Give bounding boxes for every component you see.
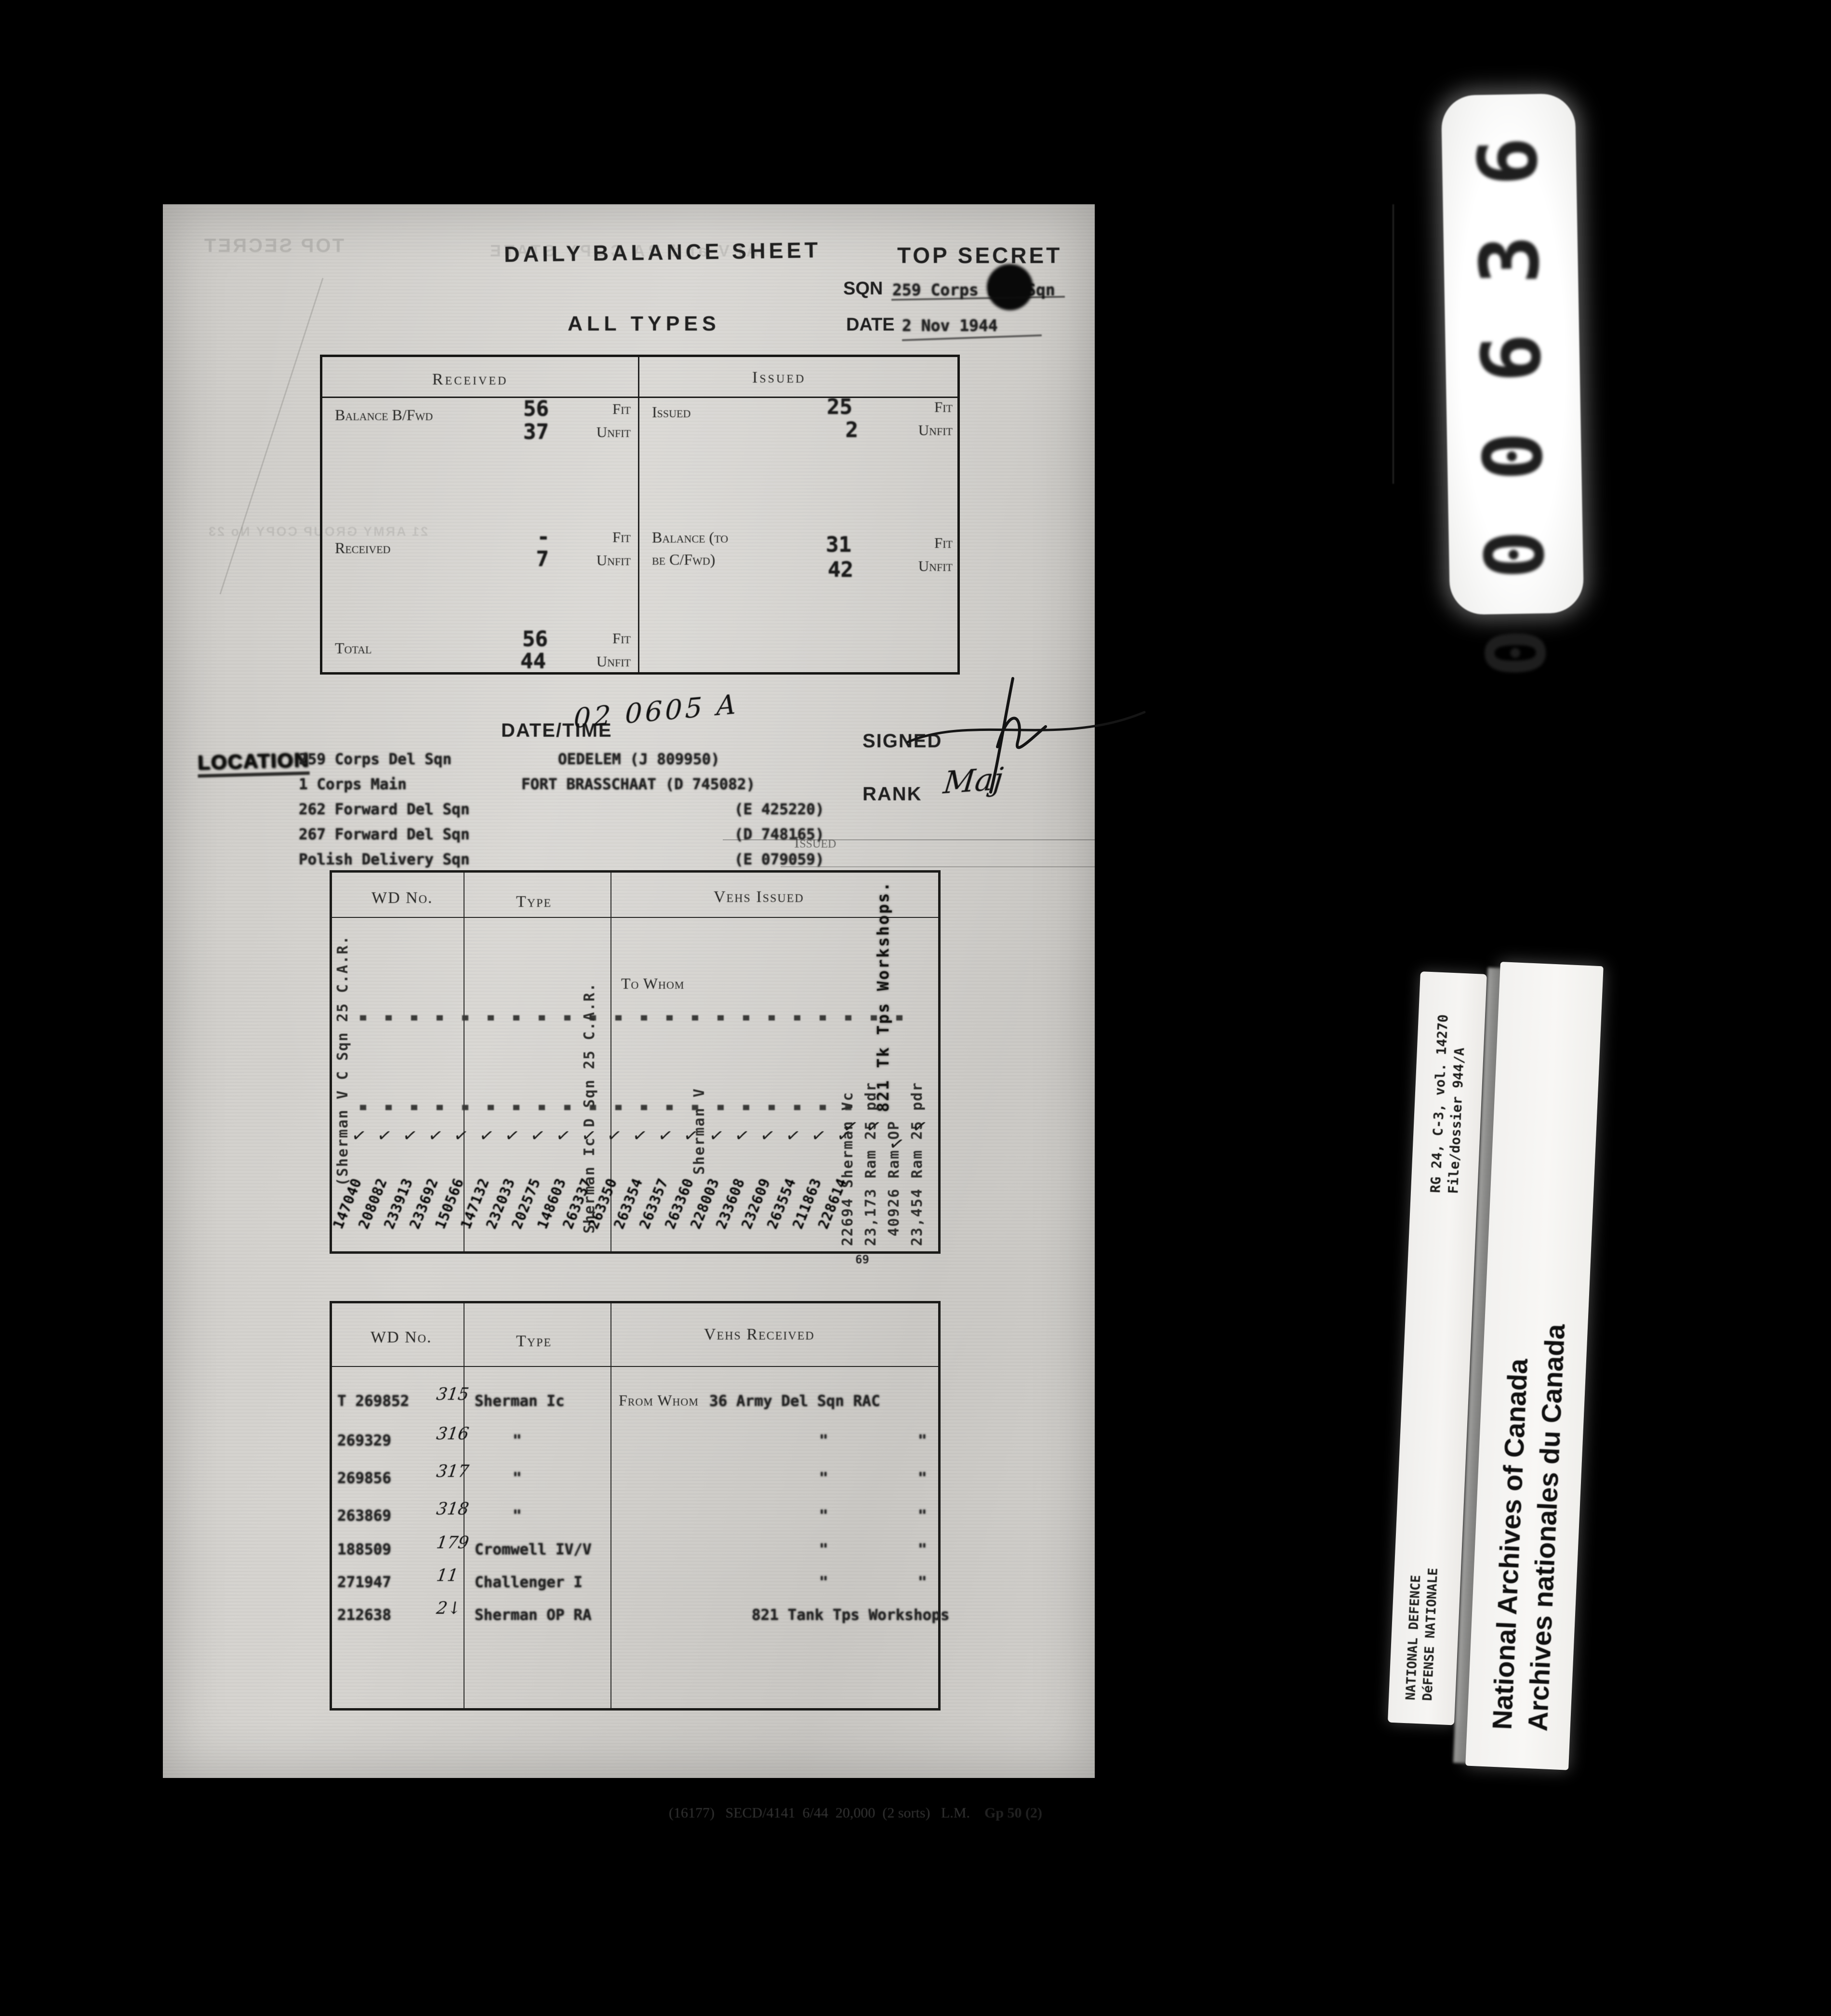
counter-digit: 3 [1463, 218, 1556, 301]
ditto-mark: " [819, 1541, 828, 1558]
film-frame-counter: 636000 [1441, 93, 1584, 615]
ditto-mark: " [513, 1432, 522, 1449]
hand-annotation: 179 [435, 1533, 470, 1552]
hand-annotation: 2↓ [435, 1599, 463, 1618]
col-type: Type [516, 1332, 552, 1351]
counter-digit-value: 6 [1460, 136, 1556, 187]
ditto-mark: " [513, 1470, 522, 1487]
tick-mark: ✓ [887, 1132, 907, 1156]
hand-annotation: 11 [435, 1566, 459, 1585]
hand-annotation: 315 [435, 1385, 470, 1404]
vehicle-type: Cromwell IV/V [475, 1541, 592, 1558]
from-unit: 821 Tank Tps Workshops [752, 1606, 950, 1624]
print-imprint-gp [970, 1805, 984, 1821]
wd-number: 269856 [337, 1470, 391, 1487]
ditto-mark: " [918, 1574, 927, 1591]
received-row: 212638 2↓ Sherman OP RA 821 Tank Tps Wor… [330, 1606, 936, 1645]
wd-number: T 269852 [337, 1393, 409, 1410]
ditto-mark: " [819, 1432, 828, 1449]
received-row: 269856 317 " " " [330, 1470, 936, 1508]
print-imprint-line: (16177) SECD/4141 6/44 20,000 (2 sorts) … [654, 1789, 1042, 1838]
received-row: 269329 316 " " " [330, 1432, 936, 1471]
ditto-mark: " [918, 1541, 927, 1558]
wd-number: 269329 [337, 1432, 391, 1449]
tick-mark: ✓ [864, 1114, 884, 1139]
rg-reference: RG 24, C-3, vol. 14270 File/dossier 944/… [1426, 1014, 1470, 1194]
ditto-mark: " [918, 1432, 927, 1449]
wd-number: 212638 [337, 1606, 391, 1624]
header-rule [332, 1366, 938, 1367]
wd-number: 263869 [337, 1507, 391, 1525]
counter-digit-value: 0 [1469, 628, 1565, 678]
hand-annotation: 316 [435, 1424, 470, 1444]
hand-annotation: 318 [435, 1499, 470, 1519]
tick-mark: ✓ [910, 1114, 930, 1139]
counter-digit-value: 6 [1464, 333, 1559, 384]
ditto-mark: " [819, 1574, 828, 1591]
wd-number: 188509 [337, 1541, 391, 1558]
from-unit: 36 Army Del Sqn RAC [709, 1393, 880, 1410]
national-defence-label: NATIONAL DEFENCE DéFENSE NATIONALE [1402, 1567, 1442, 1701]
ditto-mark: " [918, 1470, 927, 1487]
archives-title: National Archives of Canada Archives nat… [1485, 1322, 1574, 1732]
counter-digit: 0 [1467, 414, 1560, 498]
ditto-mark: " [819, 1470, 828, 1487]
counter-digit: 6 [1465, 316, 1558, 399]
vehicle-type: Sherman OP RA [475, 1606, 592, 1624]
col-wd-no: WD No. [371, 1328, 432, 1347]
microfilm-scan: TOP SECRET AFV and RA COPY STATE 21 ARMY… [0, 0, 1831, 2016]
col-vehs-received: Vehs Received [704, 1326, 815, 1344]
tick-glyph: ✓ [864, 1115, 883, 1139]
counter-digit-value: 0 [1466, 431, 1561, 482]
tick-glyph: ✓ [910, 1115, 929, 1139]
counter-digit-value: 3 [1462, 235, 1558, 285]
tick-glyph: ✓ [841, 1115, 860, 1139]
hand-annotation: 317 [435, 1462, 470, 1481]
tick-mark: ✓ [841, 1114, 861, 1139]
received-row: 263869 318 " " " [330, 1507, 936, 1546]
received-row: T 269852 315 Sherman Ic 36 Army Del Sqn … [330, 1393, 936, 1431]
ditto-mark: " [819, 1507, 828, 1525]
print-imprint-gp-text: Gp 50 (2) [984, 1805, 1042, 1821]
vehicle-type: Challenger I [475, 1574, 583, 1591]
stray-mark: 69 [855, 1253, 869, 1266]
ditto-mark: " [513, 1507, 522, 1525]
counter-digit: 6 [1462, 119, 1555, 203]
tick-glyph: ✓ [887, 1133, 906, 1156]
vehicle-type: Sherman Ic [475, 1393, 565, 1410]
print-imprint-text: (16177) SECD/4141 6/44 20,000 (2 sorts) … [669, 1805, 970, 1821]
counter-digit: 0 [1470, 611, 1563, 694]
ditto-mark: " [918, 1507, 927, 1525]
wd-number: 271947 [337, 1574, 391, 1591]
counter-digit-value: 0 [1467, 530, 1563, 580]
counter-digit: 0 [1469, 513, 1562, 596]
